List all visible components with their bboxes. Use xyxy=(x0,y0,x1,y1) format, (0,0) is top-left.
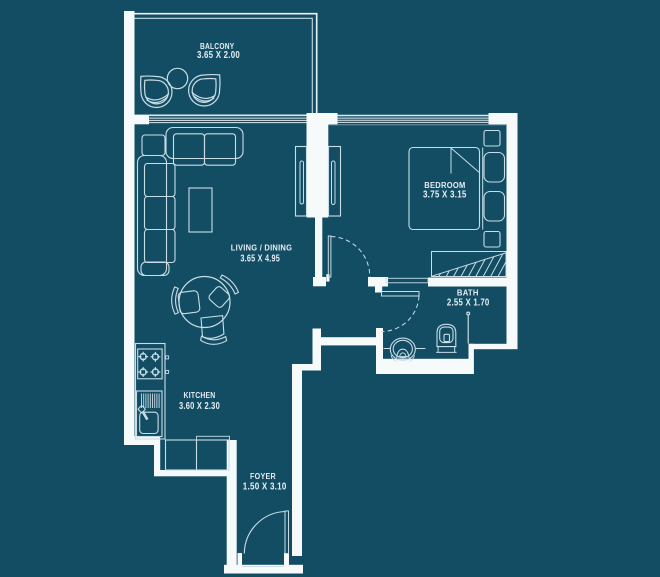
svg-text:3.60 X 2.30: 3.60 X 2.30 xyxy=(179,401,220,412)
svg-text:1.50 X 3.10: 1.50 X 3.10 xyxy=(243,481,287,492)
svg-text:3.65 X 2.00: 3.65 X 2.00 xyxy=(197,50,240,61)
svg-text:3.75 X 3.15: 3.75 X 3.15 xyxy=(423,190,467,201)
svg-text:3.65 X 4.95: 3.65 X 4.95 xyxy=(240,253,280,264)
svg-text:KITCHEN: KITCHEN xyxy=(184,390,216,400)
svg-text:FOYER: FOYER xyxy=(250,471,276,481)
svg-text:BATH: BATH xyxy=(457,288,479,298)
svg-text:2.55 X 1.70: 2.55 X 1.70 xyxy=(447,298,490,309)
svg-text:LIVING / DINING: LIVING / DINING xyxy=(231,242,292,252)
svg-text:BEDROOM: BEDROOM xyxy=(424,180,465,190)
